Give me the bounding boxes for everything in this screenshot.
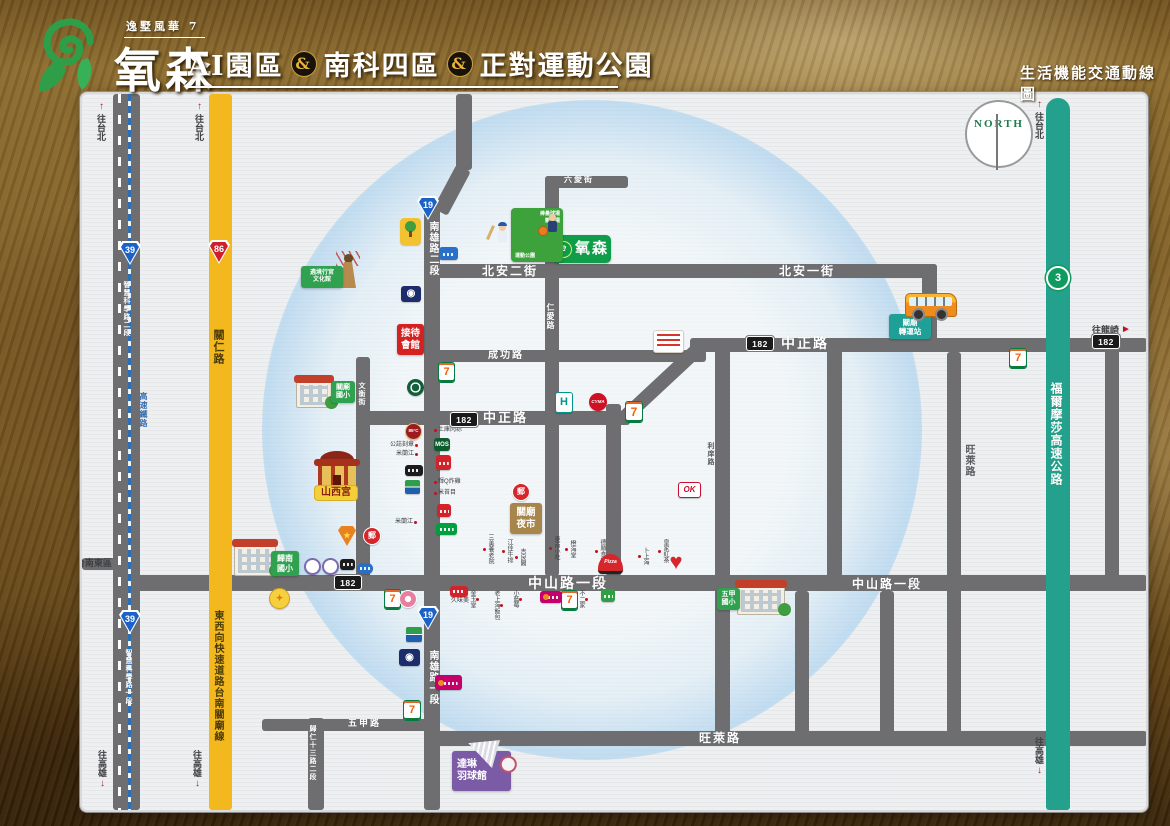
poi-bu-shanghai: 卜上海 <box>638 547 648 565</box>
red-store-2-icon <box>437 504 451 517</box>
road-label-wenheng-street: 文衡街 <box>358 382 365 406</box>
ampersand-badge-icon: & <box>447 51 473 77</box>
direction-arrow-icon: ↑ <box>99 102 104 112</box>
landmark-wujia-elementary: 五甲國小 <box>717 588 740 610</box>
pink-circle-brand-icon <box>399 590 417 608</box>
poi-fried-chicken: 輝Q炸雞 <box>434 479 461 485</box>
landmark-label-line: 氧森 <box>575 240 609 258</box>
road-label-smart-science-road-sec2: 智慧科學路二段 <box>123 281 130 337</box>
direction-label-to-kaohsiung-1: 往高雄↓ <box>96 750 109 789</box>
poi-fanbao: 老上海飯包 <box>493 590 503 620</box>
seven-eleven-3-icon: 7 <box>1009 348 1027 369</box>
road-nanxiong-top <box>456 94 472 170</box>
shuttle-bus-icon <box>905 293 957 321</box>
wujia-school-building-icon <box>737 585 785 615</box>
direction-label-to-taipei-1: ↑往台北 <box>95 102 108 141</box>
landmark-reception-hall: 接待會館 <box>397 324 424 355</box>
poster: 逸墅風華 7 氧森 AI園區 & 南科四區 & 正對運動公園 生活機能交通動線圖 <box>0 0 1170 826</box>
poi-bujia: 不二家 <box>578 590 588 608</box>
direction-label-to-taipei-3: ↑往台北 <box>1033 100 1046 139</box>
map-type-label: 生活機能交通動線圖 <box>1020 62 1170 104</box>
poi-dot-icon <box>483 548 486 551</box>
coffee-shop-icon <box>407 379 424 396</box>
road-grid-795 <box>795 591 809 738</box>
road-label-wanglai-road-h: 旺萊路 <box>699 732 741 744</box>
road-label-zhongshan-road-sec1-west: 中山路一段 <box>528 576 608 590</box>
road-label-zhongshan-road-sec1-east: 中山路一段 <box>852 578 922 590</box>
post-office-2-icon: 郵 <box>363 527 381 545</box>
poi-dot-icon <box>565 548 568 551</box>
title-segment: 南科四區 <box>324 44 440 83</box>
guannan-school-building-icon <box>234 544 276 576</box>
poi-milanjiang-1: 米蘭江 <box>396 451 418 457</box>
poi-jiangjia-steak: 江佳牛排 <box>502 539 512 563</box>
landmark-label-line: 國小 <box>722 599 736 607</box>
poi-dongnan-snack: 東南小吃 <box>549 536 559 560</box>
seven-eleven-1-icon: 7 <box>438 362 455 383</box>
title-segment: AI園區 <box>188 44 284 83</box>
poi-sanmei-nursing: 三美養老院 <box>483 534 493 564</box>
shanxi-temple-icon <box>314 451 360 487</box>
direction-arrow-icon: ► <box>1121 325 1131 335</box>
landmark-label-line: 關廟 <box>336 384 350 392</box>
landmark-label-line: 歸南 <box>277 554 293 564</box>
park-icon <box>400 218 421 245</box>
farmers-association-1-icon: ◉ <box>401 286 421 302</box>
bank-2-icon <box>406 627 422 642</box>
direction-label-to-kaohsiung-3: 往高雄↓ <box>1033 737 1046 776</box>
landmark-label-line: 遶境行宮 <box>310 270 334 277</box>
route-shield-freeway-3: 3 <box>1046 266 1070 290</box>
landmark-label-line: 轉運站 <box>899 327 922 336</box>
road-label-wanglai-road-v: 旺萊路 <box>963 444 973 477</box>
road-label-hsr-line: 高速鐵路 <box>139 392 147 428</box>
direction-arrow-icon: ↓ <box>1037 766 1042 776</box>
school-badge-2-icon <box>322 558 339 575</box>
green-sign-icon <box>601 589 615 602</box>
landmark-label-line: 運動公園 <box>515 253 535 259</box>
poi-jinyutang: 金玉堂 <box>469 590 479 608</box>
landmark-label-line: 接待 <box>401 328 420 339</box>
ampersand-badge-icon: & <box>291 51 317 77</box>
road-lixiang <box>715 345 730 740</box>
poi-mitaimu: 米苔目 <box>434 490 456 496</box>
poi-chenghai-tang: 橙海堂 <box>565 540 575 558</box>
road-label-beian-2nd-street: 北安二街 <box>482 265 538 277</box>
guanmiao-school-building-icon <box>296 380 332 408</box>
blue-sign-icon <box>439 247 458 260</box>
page-title: AI園區 & 南科四區 & 正對運動公園 <box>188 44 654 83</box>
landmark-label-line: 國小 <box>277 564 293 574</box>
family-mart-icon <box>436 523 457 535</box>
poi-dot-icon <box>549 547 552 550</box>
poya-store-icon <box>540 591 562 603</box>
poi-dot-icon <box>434 492 437 495</box>
direction-label-to-taipei-2: ↑往台北 <box>193 102 206 141</box>
landmark-guannan-elementary: 歸南國小 <box>271 551 299 576</box>
poi-jiuweimei: 久味美 <box>451 598 469 604</box>
heart-clinic-icon: ♥ <box>664 551 688 573</box>
poi-dot-icon <box>595 550 598 553</box>
landmark-label-line: 山西宮 <box>321 487 351 499</box>
compass-north-label: NORTH <box>974 118 1024 130</box>
landmark-label-line: 五甲 <box>722 591 736 599</box>
brand-logo-icon <box>28 12 116 96</box>
compass: NORTH <box>965 100 1033 168</box>
road-label-liuai-street: 六愛街 <box>564 176 594 184</box>
poi-tuku-rice-dumpling: 土庫肉粽 <box>434 427 462 433</box>
poi-dot-icon <box>658 550 661 553</box>
poi-dot-icon <box>415 444 418 447</box>
direction-arrow-icon: ↓ <box>195 779 200 789</box>
title-segment: 正對運動公園 <box>480 44 654 83</box>
poi-dot-icon <box>519 598 522 601</box>
road-label-renai-road: 仁愛路 <box>546 303 554 330</box>
road-grid-880 <box>880 591 894 738</box>
poi-dot-icon <box>415 453 418 456</box>
compass-needle-icon <box>996 114 998 170</box>
85c-cafe-icon: 85°C <box>405 423 422 440</box>
seven-eleven-6-icon: 7 <box>403 700 421 721</box>
road-label-guanren-road: 關仁路 <box>212 329 223 365</box>
title-underline <box>188 86 618 88</box>
road-wanglai-v <box>947 352 961 738</box>
variety-store-icon <box>436 455 451 470</box>
simple-mart-icon <box>435 675 462 690</box>
landmark-label-line: 文化館 <box>313 277 331 284</box>
road-label-smart-science-road-sec1: 智慧科學路一段 <box>125 649 132 705</box>
road-label-wujia-road: 五甲路 <box>348 719 381 728</box>
road-label-zhongzheng-road-north: 中正路 <box>781 336 829 350</box>
farmers-association-2-icon: ◉ <box>399 649 420 666</box>
route-shield-route-182-west: 182 <box>334 575 362 590</box>
mos-burger-icon: MOS <box>434 438 450 451</box>
road-label-formosa-freeway: 福爾摩莎高速公路 <box>1050 382 1062 486</box>
road-grid-830 <box>827 345 842 583</box>
cyma-mart-icon: CYMA <box>589 393 607 411</box>
landmark-guanmiao-elementary: 關廟國小 <box>331 381 355 403</box>
route-shield-route-182-east: 182 <box>1092 334 1120 349</box>
poi-dot-icon <box>638 555 641 558</box>
poi-dot-icon <box>502 550 505 553</box>
gold-emblem-icon: ✦ <box>269 588 290 609</box>
road-label-nanxiong-road-sec2: 南雄路二段 <box>427 221 437 276</box>
landmark-label-line: 夜市 <box>516 519 535 530</box>
poi-dot-icon <box>414 521 417 524</box>
bank-1-icon <box>405 480 420 494</box>
ok-mart-icon: OK <box>678 482 701 498</box>
black-sign-icon <box>405 465 423 476</box>
poi-dot-icon <box>515 556 518 559</box>
landmark-label-line: 國小 <box>336 392 350 400</box>
poi-jiliang-ge: 吉良閣 <box>515 548 525 566</box>
poi-dot-icon <box>434 429 437 432</box>
poi-milanjiang-2: 米蘭江 <box>395 519 417 525</box>
landmark-label-line: 會館 <box>401 340 420 351</box>
road-label-lixiang-road: 利庠路 <box>707 442 714 466</box>
seven-eleven-2-icon: 7 <box>625 401 643 423</box>
direction-label-to-tainan-east: ◄往台南東區 <box>82 556 112 569</box>
poi-blueberry: 小藍莓 <box>512 590 522 608</box>
road-zhongshan-sec1 <box>113 575 1146 591</box>
landmark-temple-culture-label: 遶境行宮文化館 <box>301 266 343 288</box>
direction-label-to-kaohsiung-2: 往高雄↓ <box>191 750 204 789</box>
red-text-sign-icon <box>653 330 684 353</box>
poi-seal-shop: 公誌刻章 <box>390 442 418 448</box>
road-label-chenggong-road: 成功路 <box>488 351 524 361</box>
direction-arrow-icon: ↓ <box>100 779 105 789</box>
road-label-beian-1st-street: 北安一街 <box>779 265 835 277</box>
baseball-kid-icon <box>495 223 509 247</box>
route-shield-route-182-north: 182 <box>746 336 774 351</box>
poi-dot-icon <box>585 598 588 601</box>
school-badge-1-icon <box>304 558 321 575</box>
dark-plate-sign-icon <box>340 559 355 570</box>
soccer-kid-icon <box>545 213 559 237</box>
post-office-1-icon: 郵 <box>512 483 530 501</box>
route-shield-route-182-central: 182 <box>450 412 478 427</box>
direction-arrow-icon: ↑ <box>197 102 202 112</box>
landmark-label-line: 關廟 <box>516 507 535 518</box>
seven-eleven-5-icon: 7 <box>561 590 578 611</box>
hi-life-icon: H <box>555 392 573 413</box>
road-mid-vertical <box>606 404 621 576</box>
road-label-zhongzheng-road-south: 中正路 <box>483 411 528 424</box>
blue-oval-sign-icon <box>357 563 373 574</box>
road-label-expressway-name: 東西向快速道路台南關廟線 <box>212 610 222 742</box>
hero-sign-icon <box>450 586 468 597</box>
road-grid-east <box>1105 345 1119 583</box>
landmark-guanmiao-night-market: 關廟夜市 <box>510 503 542 534</box>
poi-dot-icon <box>500 604 503 607</box>
road-label-guiren-13th-road: 歸仁十三路二段 <box>309 725 316 781</box>
poi-dot-icon <box>434 481 437 484</box>
poi-dot-icon <box>476 598 479 601</box>
map-canvas: NORTH 北安二街北安一街中正路中正路成功路中山路一段中山路一段旺萊路旺萊路五… <box>82 94 1146 810</box>
landmark-shanxi-temple-label: 山西宮 <box>315 486 357 500</box>
